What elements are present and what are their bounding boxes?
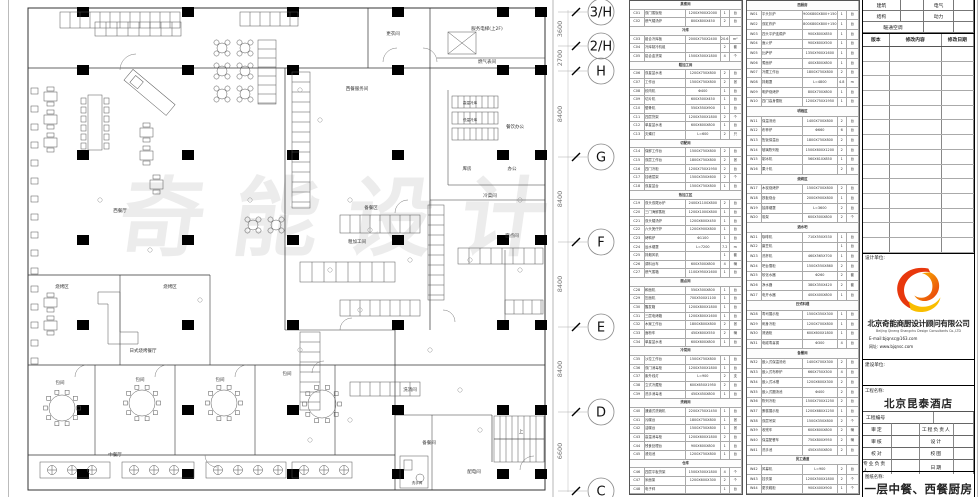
room-label: 备餐间 <box>422 439 436 446</box>
revision-cell <box>863 194 890 208</box>
client-section: 建设单位: <box>863 359 974 386</box>
stairs <box>494 416 544 462</box>
schedule-item-row: W03四头平炉连焗炉900X800X8501台 <box>747 30 859 40</box>
item-code: C30 <box>630 304 645 313</box>
schedule-item-row: C40通道式洗碗机2200X750X14501台 <box>630 408 742 417</box>
item-qty: 2 <box>838 427 847 437</box>
design-unit-section: 设计单位: 北京奇能商厨设计顾问有限公司 Beijing Qineng Shan… <box>863 253 974 359</box>
item-code: W24 <box>747 262 762 272</box>
company-name-en: Beijing Qineng Shangchu Design Consultan… <box>863 329 974 333</box>
schedule-item-row: C10锯骨机550X550X9001台 <box>630 105 742 114</box>
item-qty: 2 <box>721 330 730 339</box>
revision-cell <box>863 135 890 149</box>
schedule-item-row: C47米面架1200X600X3002个 <box>630 477 742 486</box>
grid-bubble-label: E <box>597 321 605 336</box>
item-code: W17 <box>747 185 762 195</box>
item-spec: Φ300 <box>803 340 838 350</box>
item-spec <box>686 486 721 495</box>
item-qty: 2 <box>721 382 730 391</box>
item-unit: 个 <box>847 214 859 224</box>
item-code: C44 <box>630 442 645 451</box>
item-unit: 台 <box>730 451 742 460</box>
item-name: 残食处理台 <box>645 442 686 451</box>
item-spec: 1200X680X1250 <box>803 407 838 417</box>
schedule-item-row: W41洗手池450X450X8002台 <box>747 446 859 456</box>
item-name: 保鲜工作台 <box>645 148 686 157</box>
schedule-item-row: W05比萨炉1350X900X16001台 <box>747 49 859 59</box>
item-name: 净水器 <box>762 281 803 291</box>
item-qty: 1 <box>838 485 847 495</box>
item-code: W26 <box>747 281 762 291</box>
approval-label: 设计 <box>920 435 954 447</box>
schedule-item-row: W40保温配餐车750X800X9502辆 <box>747 436 859 446</box>
item-spec: 1350X900X1600 <box>803 49 838 59</box>
item-qty: 2 <box>721 165 730 174</box>
section-title: 酒水吧 <box>747 223 859 233</box>
item-name: 洗手消毒池 <box>645 391 686 400</box>
item-name: 灭蝇灯 <box>645 131 686 140</box>
item-unit: 台 <box>847 291 859 301</box>
item-qty: 1 <box>838 49 847 59</box>
revision-cell <box>890 120 942 134</box>
revision-empty-row <box>863 76 974 91</box>
schedule-section-row: 切配间 <box>630 140 742 149</box>
item-qty: 1 <box>838 30 847 40</box>
schedule-item-row: W04面火炉900X600X5001台 <box>747 40 859 50</box>
item-name: 保温配餐车 <box>762 436 803 446</box>
schedule-section-row: 仓库 <box>630 460 742 469</box>
item-code: C42 <box>630 425 645 434</box>
item-code: W13 <box>747 136 762 146</box>
item-qty: 1 <box>838 11 847 21</box>
item-qty: 1 <box>838 20 847 30</box>
room-label: 洗消间 <box>403 386 417 393</box>
schedule-item-row: W43挂衣架1200X500X18002个 <box>747 475 859 485</box>
item-unit: 台 <box>847 388 859 398</box>
watermark-text: 奇能设计 <box>112 169 582 269</box>
schedule-item-row: C48电子秤1台 <box>630 486 742 495</box>
item-spec: 2000X900X800 <box>803 194 838 204</box>
approval-value <box>892 435 920 447</box>
item-code: W33 <box>747 369 762 379</box>
schedule-item-row: C04冷库制冷机组2套 <box>630 44 742 53</box>
item-spec: L=3600 <box>803 204 838 214</box>
item-code: C04 <box>630 44 645 53</box>
revision-cell <box>942 135 974 149</box>
item-spec: 450X450X800 <box>686 391 721 400</box>
dimension-text: 8400 <box>556 106 564 123</box>
item-name: 双头双尾炒炉 <box>645 200 686 209</box>
item-name: 醒发箱 <box>645 304 686 313</box>
item-spec: 660X750X300 <box>803 369 838 379</box>
item-unit: 台 <box>730 235 742 244</box>
schedule-item-row: C38立式冷藏柜600X650X19502台 <box>630 382 742 391</box>
schedule-item-row: W26净水器380X350X4202套 <box>747 281 859 291</box>
item-spec: 600X600X1800 <box>803 330 838 340</box>
schedule-item-row: W23洗杯机460X565X7001台 <box>747 252 859 262</box>
item-code: C33 <box>630 330 645 339</box>
revision-cell <box>863 223 890 237</box>
grid-bubble-label: C <box>596 485 605 497</box>
item-code: W31 <box>747 340 762 350</box>
item-unit: 套 <box>730 252 742 261</box>
item-name: 污碟台 <box>645 417 686 426</box>
schedule-item-row: W10四门高身雪柜1200X750X19501台 <box>747 98 859 108</box>
item-spec: 800X800X800+150 <box>803 20 838 30</box>
item-code: C24 <box>630 243 645 252</box>
schedule-item-row: C25排烟风机1套 <box>630 252 742 261</box>
item-code: W41 <box>747 446 762 456</box>
item-spec <box>803 165 838 175</box>
item-spec: 600X500X800 <box>686 261 721 270</box>
revision-cell <box>863 165 890 179</box>
room-label: 上 <box>519 428 524 435</box>
item-qty: 1 <box>721 269 730 278</box>
approval-row: 专业负责人日期 <box>863 459 974 471</box>
discipline-label: 电气 <box>924 0 954 11</box>
item-qty: 1 <box>721 226 730 235</box>
item-qty: 2 <box>721 131 730 140</box>
item-code: W22 <box>747 243 762 253</box>
item-name: 压面机 <box>645 295 686 304</box>
item-spec: 1500X350X800 <box>803 417 838 427</box>
item-qty: 7.2 <box>721 243 730 252</box>
item-name: 布菲炉 <box>762 127 803 137</box>
item-qty: 1 <box>721 417 730 426</box>
item-unit: 个 <box>730 174 742 183</box>
item-name: 烤鸭炉 <box>645 235 686 244</box>
item-unit: 台 <box>847 40 859 50</box>
revision-cell <box>890 223 942 237</box>
revision-empty-row <box>863 194 974 209</box>
item-spec: 1200X500X1800 <box>686 365 721 374</box>
discipline-value <box>954 0 974 11</box>
item-name: 燃气矮汤炉 <box>645 18 686 27</box>
room-label: 服务电梯(上2F) <box>471 25 503 32</box>
item-unit: 台 <box>730 88 742 97</box>
revision-col-version: 版本 <box>863 34 890 46</box>
item-code: C07 <box>630 79 645 88</box>
schedule-item-row: C39洗手消毒池450X450X8001台 <box>630 391 742 400</box>
item-code: C12 <box>630 122 645 131</box>
schedule-item-row: W13售饭保温台1800X750X8002台 <box>747 136 859 146</box>
item-unit: 辆 <box>730 261 742 270</box>
item-code: W23 <box>747 252 762 262</box>
revision-empty-row <box>863 91 974 106</box>
schedule-item-row: W30清酒柜600X600X18001台 <box>747 330 859 340</box>
item-spec: 1200X900X800 <box>686 226 721 235</box>
item-code: C17 <box>630 174 645 183</box>
schedule-item-row: W24吧台雪柜1500X550X8602台 <box>747 262 859 272</box>
item-unit: 台 <box>847 11 859 21</box>
schedule-item-row: W33嵌入式布菲炉660X750X3004台 <box>747 369 859 379</box>
grid-bubble-label: F <box>597 236 604 251</box>
item-qty: 2 <box>721 174 730 183</box>
item-unit: 支 <box>730 373 742 382</box>
approval-row: 校对校图 <box>863 447 974 459</box>
company-logo <box>891 262 947 316</box>
section-title: 仓库 <box>630 460 742 469</box>
revision-cell <box>863 62 890 76</box>
item-unit: 套 <box>847 272 859 282</box>
item-unit: 台 <box>847 262 859 272</box>
item-unit: 台 <box>847 330 859 340</box>
item-code: W04 <box>747 40 762 50</box>
schedule-item-row: C20三门海鲜蒸柜1200X1000X8001台 <box>630 209 742 218</box>
item-qty: 2 <box>838 359 847 369</box>
item-qty: 1 <box>838 40 847 50</box>
revision-empty-row <box>863 223 974 238</box>
schedule-item-row: W07冷藏工作台1800X750X8002台 <box>747 69 859 79</box>
revision-empty-row <box>863 135 974 150</box>
item-qty: 2 <box>721 70 730 79</box>
section-title: 面点间 <box>630 278 742 287</box>
discipline-label: 动力 <box>924 11 954 22</box>
dimension-text: 6600 <box>556 443 564 460</box>
item-spec: 1500X500X1800 <box>686 468 721 477</box>
item-code: C28 <box>630 287 645 296</box>
revision-cell <box>942 47 974 61</box>
item-code: W14 <box>747 146 762 156</box>
item-code: C25 <box>630 252 645 261</box>
item-qty: 1 <box>721 304 730 313</box>
item-qty: 20.6 <box>721 36 730 45</box>
schedule-item-row: W39收残车600X600X8002辆 <box>747 427 859 437</box>
item-name: 单星盆水池 <box>645 339 686 348</box>
item-code: C31 <box>630 313 645 322</box>
item-name: 电开水器 <box>762 291 803 301</box>
revision-empty-row <box>863 106 974 121</box>
item-qty: 2 <box>721 477 730 486</box>
schedule-item-row: W16果汁机2台 <box>747 165 859 175</box>
item-code: C43 <box>630 434 645 443</box>
item-spec: 1500X750X800 <box>686 183 721 192</box>
room-label: 库房 <box>463 165 472 172</box>
item-qty: 1 <box>838 330 847 340</box>
item-spec: 900X800X850 <box>803 30 838 40</box>
item-unit: 张 <box>730 417 742 426</box>
discipline-label: 结构 <box>863 11 901 22</box>
item-code: C13 <box>630 131 645 140</box>
drawing-sheet: 奇能设计 <box>0 0 979 497</box>
item-code: W12 <box>747 127 762 137</box>
item-unit: 台 <box>730 339 742 348</box>
item-qty: 1 <box>838 320 847 330</box>
schedule-item-row: W32嵌入式保温汤池1400X700X3002台 <box>747 359 859 369</box>
discipline-row: 结构动力 <box>863 11 974 22</box>
item-spec: 2000X750X2400 <box>686 36 721 45</box>
section-title: 冷库 <box>630 27 742 36</box>
revision-cell <box>863 238 890 252</box>
approval-label: 校图 <box>920 447 954 459</box>
company-email: E-mail:bjqnsc@163.com <box>869 336 917 341</box>
schedule-item-row: C32木案工作台1800X800X8002张 <box>630 321 742 330</box>
item-qty: 1 <box>721 88 730 97</box>
item-unit: m² <box>730 36 742 45</box>
item-unit: 台 <box>847 30 859 40</box>
item-code: C10 <box>630 105 645 114</box>
item-unit: 台 <box>847 69 859 79</box>
schedule-item-row: W38双层吊架1500X350X8002个 <box>747 417 859 427</box>
schedule-item-row: W17木炭烧烤炉1500X700X8002台 <box>747 185 859 195</box>
item-qty: 2 <box>838 388 847 398</box>
item-code: C21 <box>630 217 645 226</box>
item-name: 双星盆水池 <box>645 70 686 79</box>
item-spec: 2400X1100X800 <box>686 200 721 209</box>
discipline-row: 建筑电气 <box>863 0 974 11</box>
revision-cell <box>863 209 890 223</box>
section-title: 明档区 <box>747 107 859 117</box>
item-spec: 2200X750X1450 <box>686 408 721 417</box>
item-name: 洗杯机 <box>762 252 803 262</box>
item-code: C02 <box>630 18 645 27</box>
item-qty: 1 <box>721 10 730 19</box>
project-number-value <box>934 412 974 423</box>
item-spec: 1800X750X800 <box>686 157 721 166</box>
item-qty: 1 <box>721 183 730 192</box>
item-unit: 台 <box>730 200 742 209</box>
revision-col-date: 修改日期 <box>942 34 974 46</box>
item-unit: 台 <box>730 18 742 27</box>
item-name: 嵌入式保温汤池 <box>762 359 803 369</box>
equipment-schedule-right: 西厨房W01平头扒炉900X800X800+1501台W02双缸炸炉800X80… <box>746 0 860 495</box>
schedule-section-row: 烧烤区 <box>747 175 859 185</box>
revision-cell <box>942 62 974 76</box>
schedule-item-row: C12单星盆水池600X600X8001台 <box>630 122 742 131</box>
item-unit: 辆 <box>730 330 742 339</box>
item-qty: 4 <box>721 261 730 270</box>
item-name: 组合冷库板 <box>645 36 686 45</box>
section-title: 切配间 <box>630 140 742 149</box>
item-qty: 1 <box>838 243 847 253</box>
item-name: 寿司展示柜 <box>762 311 803 321</box>
section-title: 热加工区 <box>630 191 742 200</box>
item-spec: 550X550X900 <box>686 105 721 114</box>
item-spec: 600X600X800 <box>686 339 721 348</box>
item-unit: 台 <box>847 446 859 456</box>
item-qty: 1 <box>838 98 847 108</box>
item-name: 洁碟台 <box>645 425 686 434</box>
item-unit: 台 <box>847 204 859 214</box>
section-title: 粗加工间 <box>630 62 742 71</box>
revision-empty-row <box>863 165 974 180</box>
title-block: 建筑电气结构动力暖通空调 版本 修改内容 修改日期 设计单位: 北京奇能商厨设计… <box>862 0 975 497</box>
item-name: 工作台 <box>645 79 686 88</box>
item-unit: 台 <box>847 136 859 146</box>
grid-bubble-label: G <box>596 151 606 166</box>
item-qty: 1 <box>721 295 730 304</box>
item-spec: 1500X600X1200 <box>803 146 838 156</box>
item-qty: 2 <box>838 146 847 156</box>
schedule-section-row: 面点间 <box>630 278 742 287</box>
schedule-item-row: C23烤鸭炉Φ11001台 <box>630 235 742 244</box>
section-title: 洗碗间 <box>630 399 742 408</box>
revision-rows <box>863 47 974 253</box>
item-qty: 2 <box>838 436 847 446</box>
item-spec: 1200X500X1800 <box>686 114 721 123</box>
schedule-item-row: C45浸泡池1200X750X8001台 <box>630 451 742 460</box>
item-unit: 台 <box>847 20 859 30</box>
item-code: C06 <box>630 70 645 79</box>
item-spec: 800X700X800 <box>803 88 838 98</box>
item-unit: m <box>847 78 859 88</box>
item-name: 调料台车 <box>645 261 686 270</box>
item-unit: 个 <box>730 114 742 123</box>
item-name: 煮面炉 <box>762 59 803 69</box>
item-code: W19 <box>747 204 762 214</box>
item-unit: 个 <box>730 53 742 62</box>
item-spec: 1500X550X860 <box>803 262 838 272</box>
item-qty: 2 <box>838 378 847 388</box>
item-name: 四层货架 <box>645 114 686 123</box>
item-spec: 900X400X900 <box>803 485 838 495</box>
item-unit: 台 <box>730 122 742 131</box>
item-qty: 2 <box>838 136 847 146</box>
item-name: 比萨炉 <box>762 49 803 59</box>
item-unit: 台 <box>847 243 859 253</box>
discipline-table: 建筑电气结构动力暖通空调 <box>863 0 974 33</box>
item-code: W03 <box>747 30 762 40</box>
item-name: 四门冷柜 <box>645 165 686 174</box>
item-name: 双层吊架 <box>762 417 803 427</box>
item-code: W28 <box>747 311 762 321</box>
project-name-label: 工程名称: <box>863 385 974 395</box>
item-spec: 1500X750X800 <box>686 356 721 365</box>
project-number-label: 工程编号 <box>863 412 934 423</box>
item-unit: 台 <box>730 434 742 443</box>
schedule-item-row: C11四层货架1200X500X18002个 <box>630 114 742 123</box>
room-label: 餐饮办公 <box>506 123 524 130</box>
item-qty: 1 <box>721 122 730 131</box>
item-spec: L=900 <box>686 373 721 382</box>
revision-cell <box>863 120 890 134</box>
revision-empty-row <box>863 179 974 194</box>
item-spec: 710X550X530 <box>803 233 838 243</box>
revision-cell <box>863 106 890 120</box>
item-qty: 2 <box>721 434 730 443</box>
item-spec: L=600 <box>686 131 721 140</box>
item-spec: 1200X800X1800 <box>686 304 721 313</box>
approval-row: 审定工程负责人 <box>863 423 974 435</box>
item-unit: 台 <box>847 407 859 417</box>
schedule-item-row: W06煮面炉400X800X8001台 <box>747 59 859 69</box>
item-name: 嵌入式冰槽 <box>762 378 803 388</box>
item-name: 抽排烟罩 <box>762 204 803 214</box>
schedule-item-row: W18铁板烧台2000X900X8001台 <box>747 194 859 204</box>
item-spec: 1200X700X800 <box>803 320 838 330</box>
item-code: C23 <box>630 235 645 244</box>
item-code: C48 <box>630 486 645 495</box>
schedule-section-row: 冷库 <box>630 27 742 36</box>
item-code: W20 <box>747 214 762 224</box>
item-qty: 1 <box>838 194 847 204</box>
grid-bubble-label: D <box>596 406 606 421</box>
revision-cell <box>942 179 974 193</box>
item-unit: 台 <box>847 252 859 262</box>
item-name: 双层工作台 <box>645 157 686 166</box>
item-spec: 1500X500X1800 <box>686 53 721 62</box>
schedule-item-row: W22磨豆机1台 <box>747 243 859 253</box>
item-unit: 套 <box>730 44 742 53</box>
section-title: 备餐间 <box>747 349 859 359</box>
grid-bubble-label: 3/H <box>590 6 612 21</box>
item-spec: L=4800 <box>803 78 838 88</box>
item-code: C27 <box>630 269 645 278</box>
item-code: C18 <box>630 183 645 192</box>
approval-value <box>892 423 920 435</box>
item-unit: 台 <box>730 70 742 79</box>
item-unit: 张 <box>730 425 742 434</box>
